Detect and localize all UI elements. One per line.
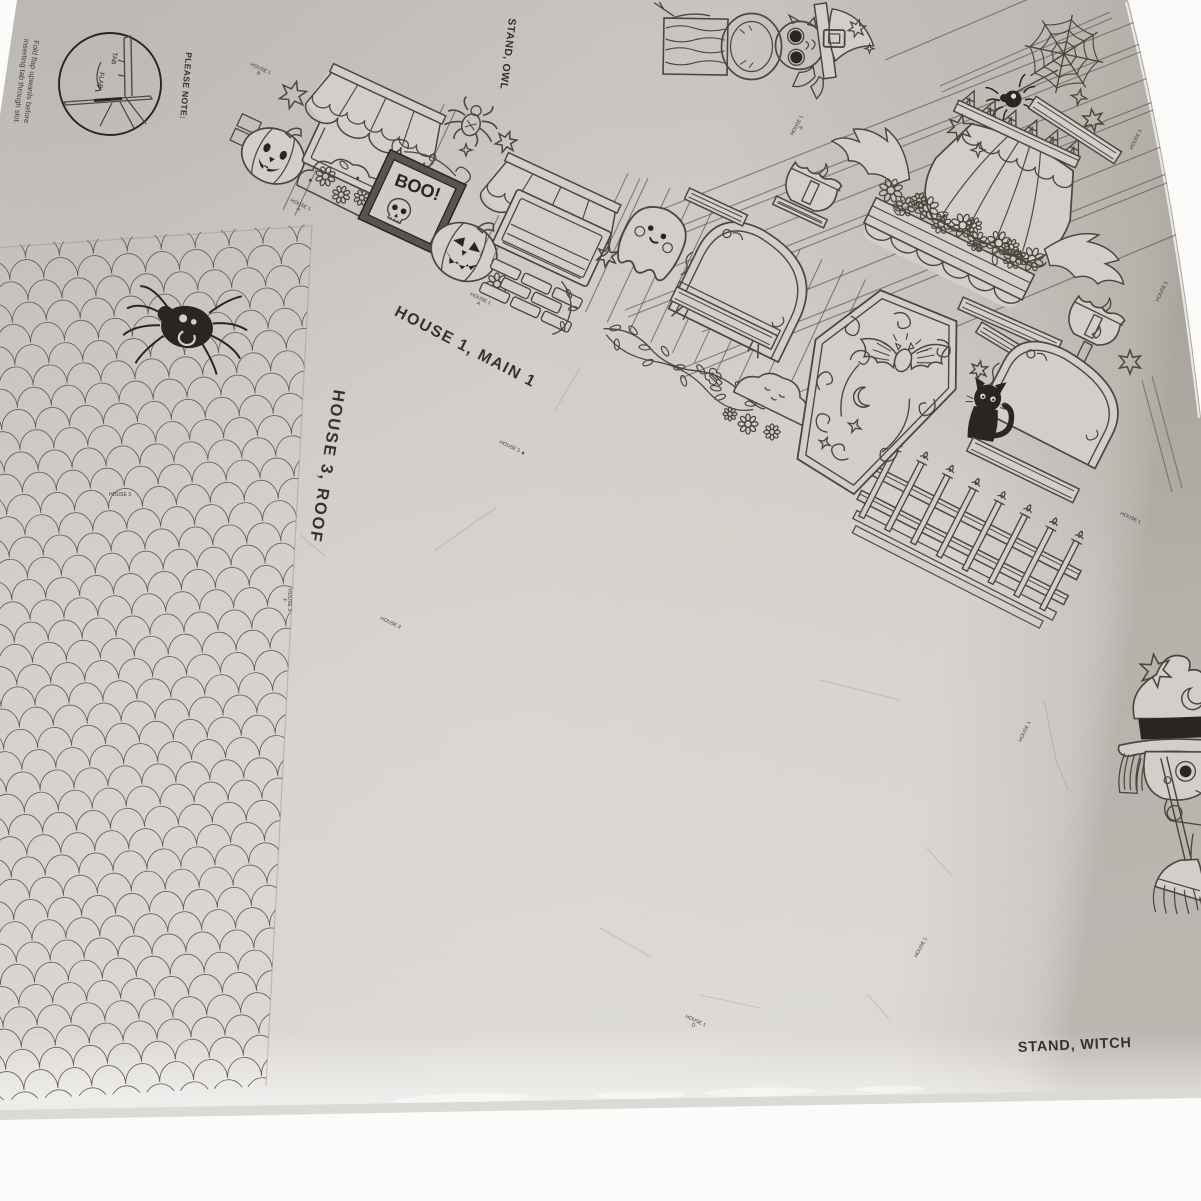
svg-text:TAB: TAB (110, 52, 118, 65)
svg-text:F: F (281, 598, 287, 601)
svg-text:HOUSE 3: HOUSE 3 (109, 492, 131, 498)
